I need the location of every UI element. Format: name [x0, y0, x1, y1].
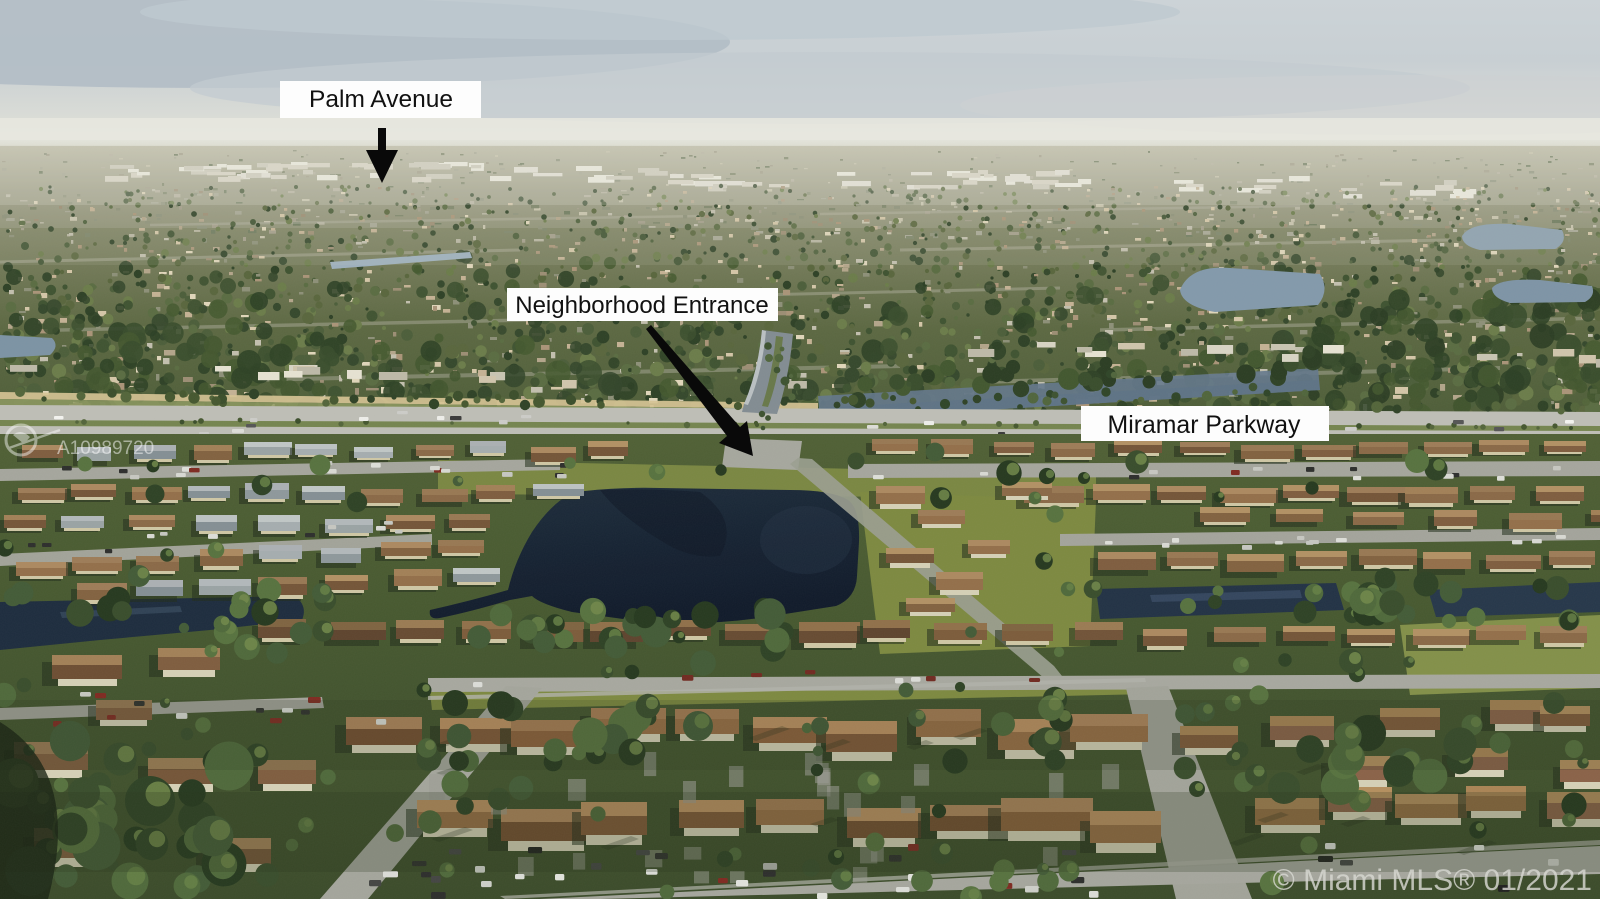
- svg-text:Miramar Parkway: Miramar Parkway: [1108, 412, 1301, 439]
- svg-text:Neighborhood Entrance: Neighborhood Entrance: [515, 292, 769, 319]
- svg-text:A10989720: A10989720: [57, 438, 154, 459]
- svg-text:Palm Avenue: Palm Avenue: [309, 86, 453, 113]
- svg-text:© Miami MLS® 01/2021: © Miami MLS® 01/2021: [1273, 864, 1592, 897]
